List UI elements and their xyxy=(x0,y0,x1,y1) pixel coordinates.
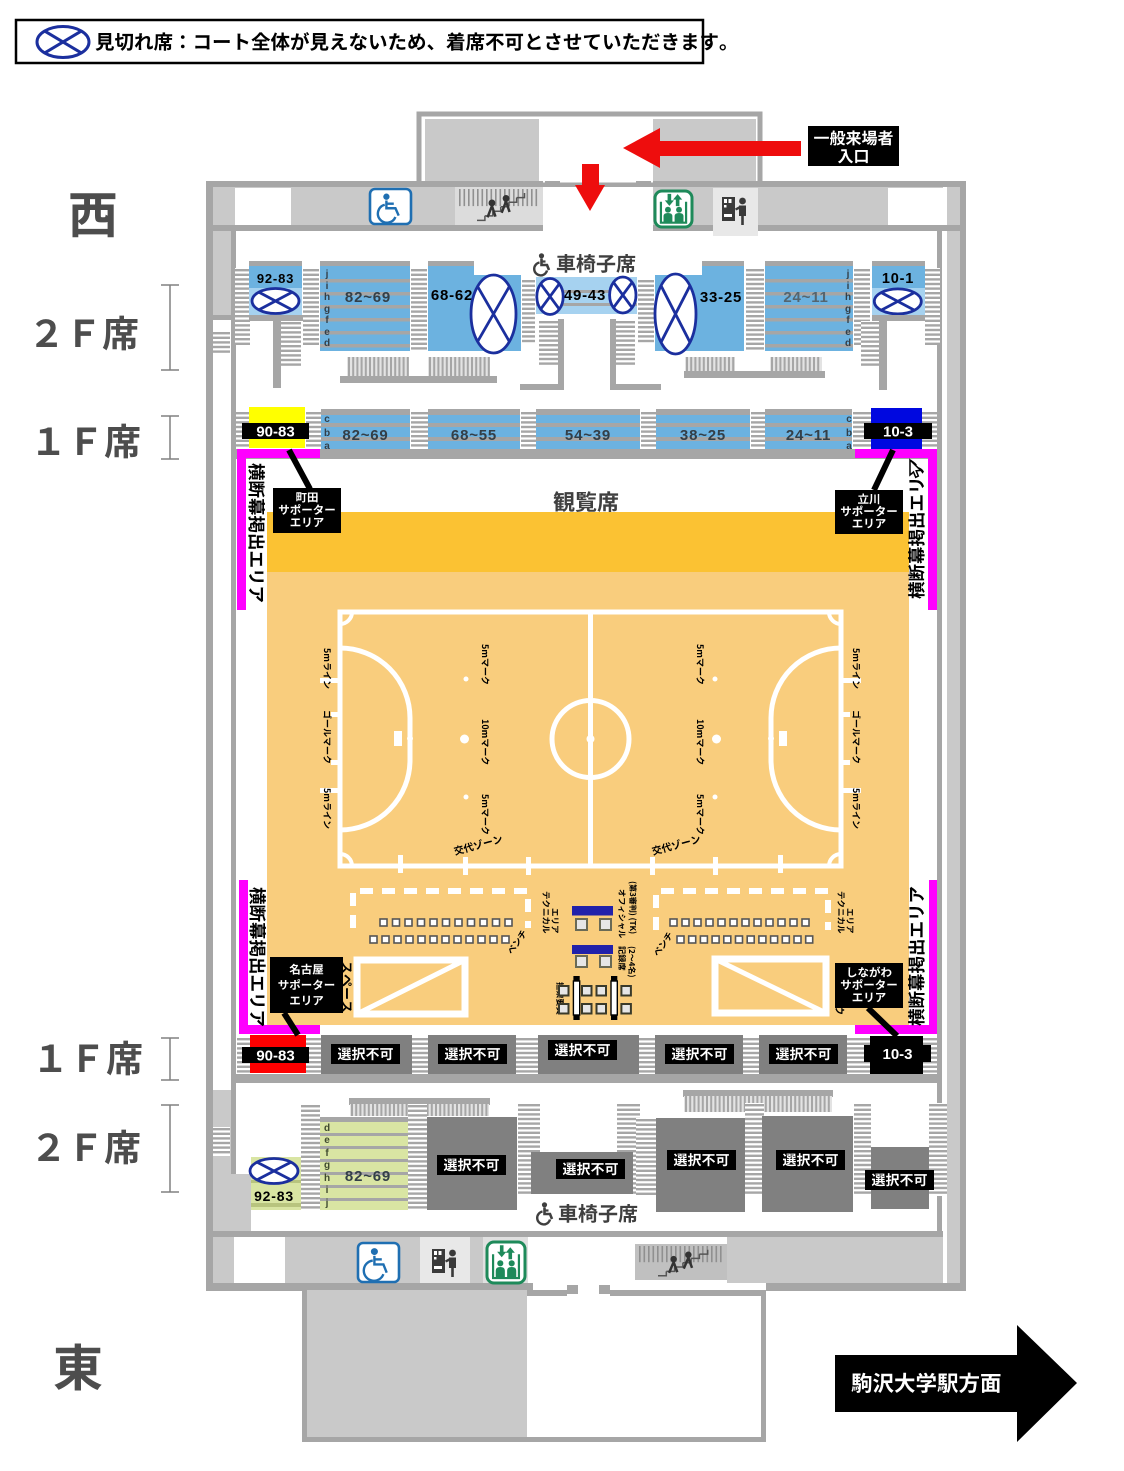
svg-text:24~11: 24~11 xyxy=(786,427,831,444)
svg-text:j: j xyxy=(325,1198,329,1209)
svg-text:i: i xyxy=(847,281,850,292)
svg-text:33-25: 33-25 xyxy=(700,289,742,306)
svg-text:e: e xyxy=(324,1135,330,1146)
svg-text:82~69: 82~69 xyxy=(345,289,391,306)
svg-text:38~25: 38~25 xyxy=(680,427,726,444)
svg-text:24~11: 24~11 xyxy=(783,289,828,306)
svg-text:h: h xyxy=(845,292,851,303)
svg-text:49-43: 49-43 xyxy=(564,287,606,304)
svg-text:c: c xyxy=(846,414,852,425)
svg-text:10-3: 10-3 xyxy=(882,1046,912,1063)
svg-text:j: j xyxy=(325,269,329,280)
svg-text:90-83: 90-83 xyxy=(256,423,294,440)
svg-text:g: g xyxy=(324,304,330,315)
svg-text:d: d xyxy=(324,338,330,349)
svg-text:i: i xyxy=(326,281,329,292)
svg-text:h: h xyxy=(324,292,330,303)
svg-text:82~69: 82~69 xyxy=(342,427,388,444)
svg-text:54~39: 54~39 xyxy=(565,427,611,444)
svg-text:c: c xyxy=(324,414,330,425)
svg-text:b: b xyxy=(324,428,330,439)
svg-text:92-83: 92-83 xyxy=(257,271,294,286)
svg-text:b: b xyxy=(846,428,852,439)
svg-text:e: e xyxy=(324,327,330,338)
svg-text:e: e xyxy=(845,327,851,338)
svg-text:d: d xyxy=(324,1123,330,1134)
svg-text:j: j xyxy=(846,269,850,280)
svg-text:h: h xyxy=(324,1173,330,1184)
svg-text:10-3: 10-3 xyxy=(883,423,913,440)
svg-text:10-1: 10-1 xyxy=(882,271,914,287)
svg-text:g: g xyxy=(845,304,851,315)
svg-text:g: g xyxy=(324,1160,330,1171)
svg-text:68-62: 68-62 xyxy=(431,287,473,304)
svg-text:i: i xyxy=(326,1185,329,1196)
svg-text:90-83: 90-83 xyxy=(256,1047,294,1064)
svg-text:68~55: 68~55 xyxy=(451,427,497,444)
svg-text:92-83: 92-83 xyxy=(254,1188,294,1204)
svg-text:d: d xyxy=(845,338,851,349)
svg-text:82~69: 82~69 xyxy=(345,1168,391,1185)
